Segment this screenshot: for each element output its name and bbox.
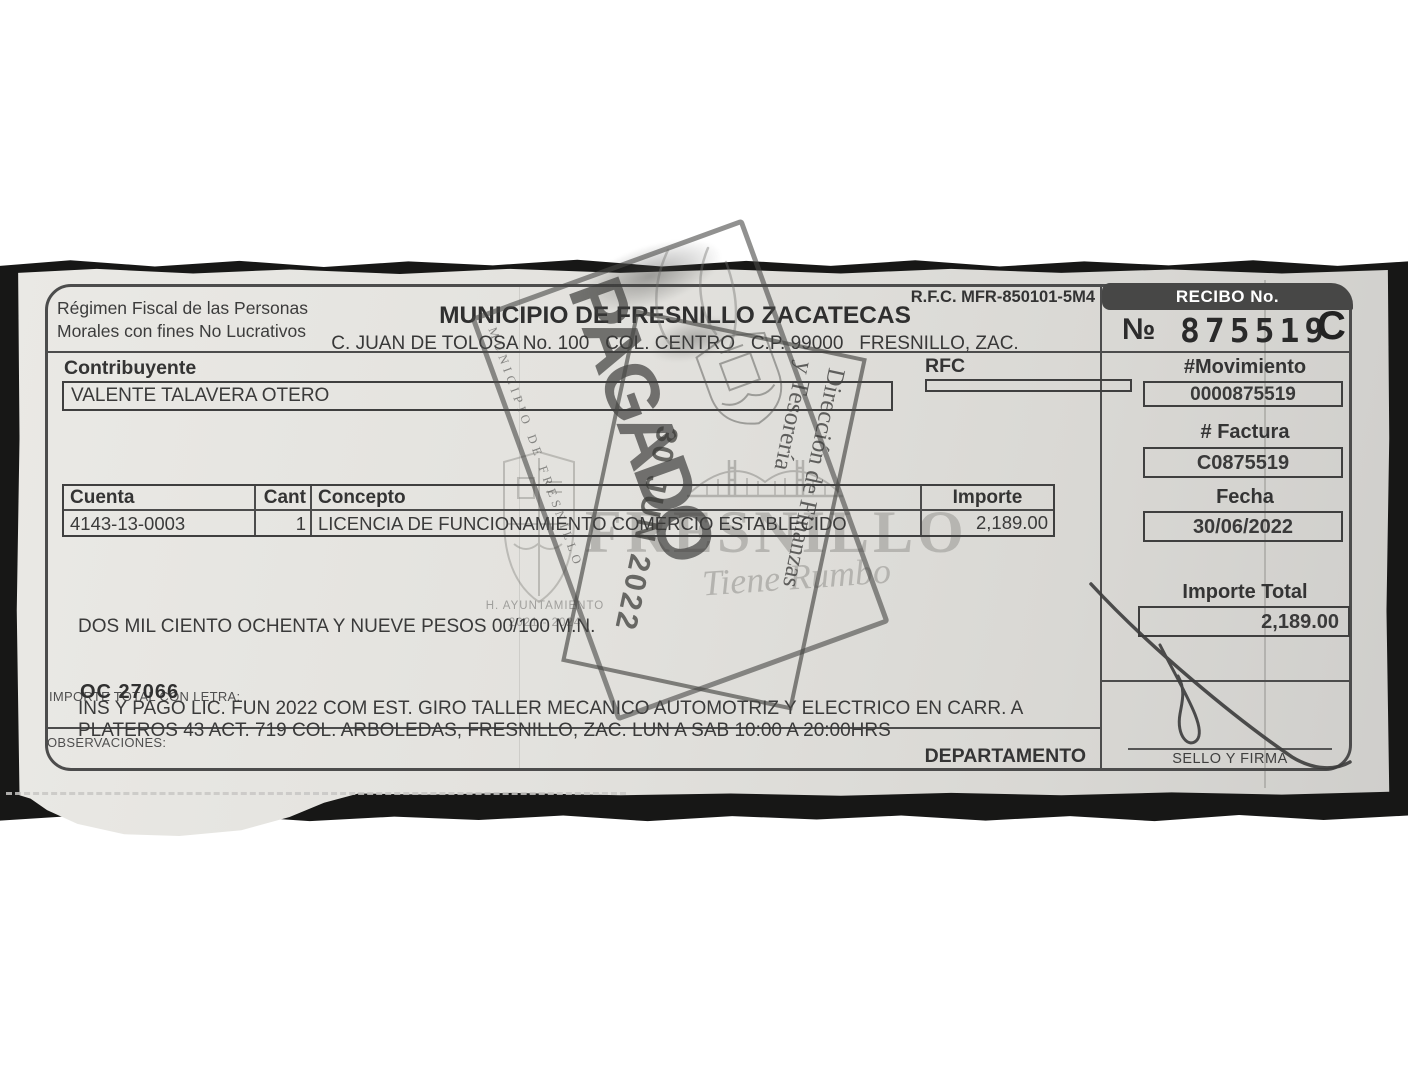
fecha-value: 30/06/2022 xyxy=(1145,513,1341,541)
col-header-importe: Importe xyxy=(925,487,1050,509)
table-col-line-2 xyxy=(310,486,312,535)
recibo-number: 875519 xyxy=(1180,311,1329,350)
recibo-series: C xyxy=(1317,304,1346,349)
col-header-cuenta: Cuenta xyxy=(70,487,134,509)
rfc-field xyxy=(925,379,1132,392)
amount-in-words: DOS MIL CIENTO OCHENTA Y NUEVE PESOS 00/… xyxy=(78,616,595,638)
right-panel-lower-divider xyxy=(1102,680,1352,682)
table-row-cuenta: 4143-13-0003 xyxy=(70,513,185,535)
regimen-line1: Régimen Fiscal de las Personas xyxy=(57,297,308,320)
departamento-label: DEPARTAMENTO xyxy=(880,745,1086,768)
numero-symbol: № xyxy=(1122,313,1155,347)
fecha-label: Fecha xyxy=(1140,486,1350,509)
right-panel-divider xyxy=(1100,286,1102,770)
factura-value: C0875519 xyxy=(1145,449,1341,477)
col-header-cant: Cant xyxy=(250,487,306,509)
factura-label: # Factura xyxy=(1140,421,1350,444)
importe-total-value: 2,189.00 xyxy=(1140,608,1348,636)
regimen-fiscal-block: Régimen Fiscal de las Personas Morales c… xyxy=(57,297,308,343)
recibo-no-header: RECIBO No. xyxy=(1102,283,1353,310)
regimen-line2: Morales con fines No Lucrativos xyxy=(57,320,308,343)
table-row-importe: 2,189.00 xyxy=(928,512,1048,534)
sello-line xyxy=(1128,748,1332,750)
payment-date-stamp-text: 30 JUN 2022 xyxy=(607,423,684,635)
fecha-field: 30/06/2022 xyxy=(1143,511,1343,542)
scanned-receipt-page: H. AYUNTAMIENTO 2021 - 2024 FRESNILLO Ti… xyxy=(0,0,1408,1088)
observaciones-line2: PLATEROS 43 ACT. 719 COL. ARBOLEDAS, FRE… xyxy=(78,720,891,742)
movimiento-field: 0000875519 xyxy=(1143,381,1343,407)
importe-total-field: 2,189.00 xyxy=(1138,606,1350,637)
movimiento-value: 0000875519 xyxy=(1145,383,1341,406)
perforation-dashes xyxy=(6,792,626,795)
observaciones-label: OBSERVACIONES: xyxy=(47,735,166,750)
rfc-field-label: RFC xyxy=(925,355,965,378)
table-row-cant: 1 xyxy=(250,513,306,535)
observaciones-line1: INS Y PAGO LIC. FUN 2022 COM EST. GIRO T… xyxy=(78,698,1023,720)
movimiento-label: #Movimiento xyxy=(1140,356,1350,379)
sello-firma-label: SELLO Y FIRMA xyxy=(1128,751,1332,767)
contribuyente-label: Contribuyente xyxy=(64,357,196,380)
col-header-concepto: Concepto xyxy=(318,487,406,509)
table-col-line-3 xyxy=(920,486,922,535)
importe-total-label: Importe Total xyxy=(1140,581,1350,604)
factura-field: C0875519 xyxy=(1143,447,1343,478)
